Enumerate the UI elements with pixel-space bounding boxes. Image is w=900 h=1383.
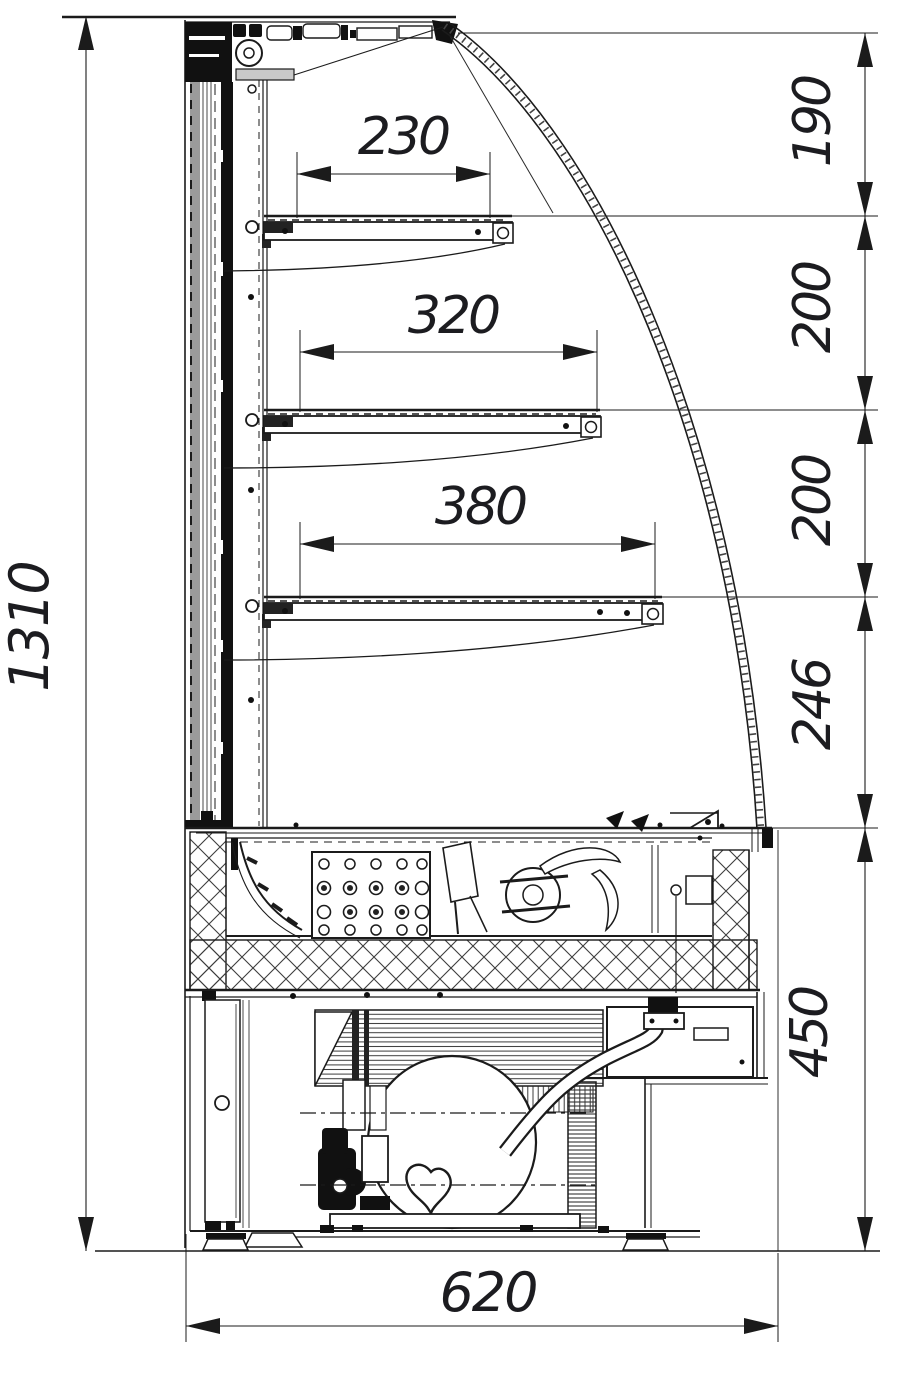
dimension-label-seg-200b: 200 <box>783 455 843 546</box>
display-case-section-drawing: 1310 190 200 200 246 450 230 <box>0 0 900 1383</box>
drawing-canvas: 1310 190 200 200 246 450 230 <box>0 0 900 1383</box>
foot-rear <box>203 1239 248 1250</box>
foot-front <box>623 1239 668 1250</box>
service-door <box>205 1000 240 1222</box>
suction-coil <box>568 1082 596 1228</box>
canopy-corner-block <box>185 22 232 82</box>
perforated-plate <box>312 852 430 938</box>
dimension-label-shelf-320: 320 <box>408 286 499 346</box>
dimension-label-seg-200a: 200 <box>783 262 843 353</box>
dimension-label-shelf-230: 230 <box>358 107 449 167</box>
dimension-label-total-height: 1310 <box>0 562 61 691</box>
dimension-label-seg-190: 190 <box>783 76 843 167</box>
dimension-label-seg-246: 246 <box>783 659 843 750</box>
lamp-tube-section <box>236 40 262 66</box>
dimension-label-seg-450: 450 <box>780 987 840 1078</box>
insulation-front-wall <box>713 850 749 990</box>
dimension-label-total-depth: 620 <box>439 1261 536 1324</box>
insulation-bottom <box>190 940 757 990</box>
dimension-label-shelf-380: 380 <box>435 477 526 537</box>
